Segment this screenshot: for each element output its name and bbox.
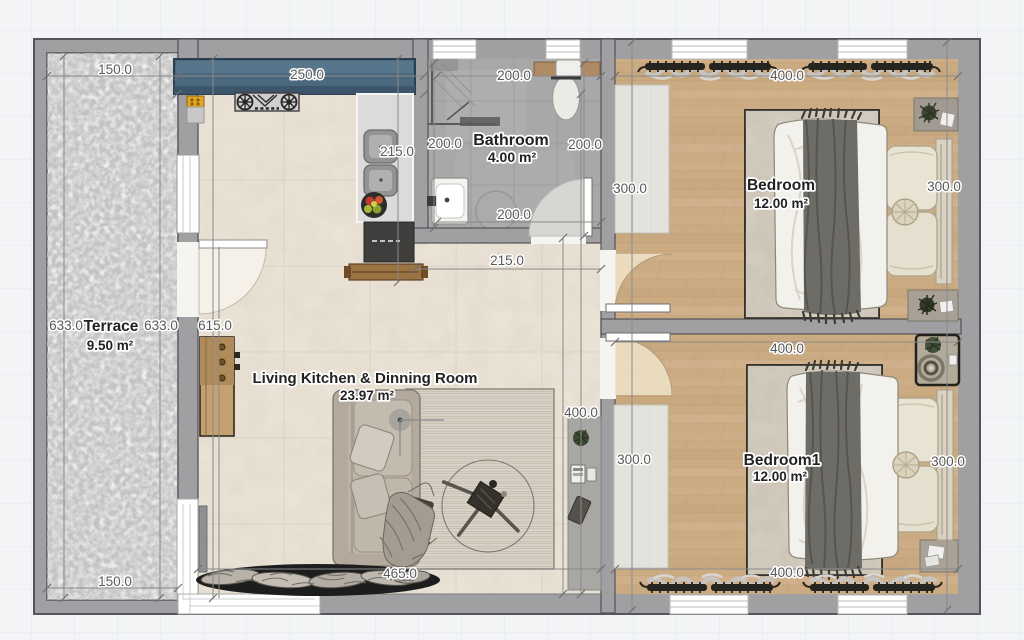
svg-text:23.97 m²: 23.97 m² — [340, 388, 395, 403]
svg-text:200.0: 200.0 — [497, 207, 531, 222]
svg-text:633.0: 633.0 — [49, 318, 83, 333]
svg-text:150.0: 150.0 — [98, 62, 132, 77]
svg-text:215.0: 215.0 — [380, 144, 414, 159]
svg-text:Living Kitchen & Dinning Room: Living Kitchen & Dinning Room — [253, 370, 478, 387]
svg-text:200.0: 200.0 — [428, 136, 462, 151]
svg-text:150.0: 150.0 — [98, 574, 132, 589]
svg-text:12.00 m²: 12.00 m² — [754, 196, 809, 211]
svg-text:12.00 m²: 12.00 m² — [753, 469, 808, 484]
svg-text:615.0: 615.0 — [198, 318, 232, 333]
svg-text:400.0: 400.0 — [770, 68, 804, 83]
svg-text:633.0: 633.0 — [144, 318, 178, 333]
svg-text:400.0: 400.0 — [770, 565, 804, 580]
svg-text:200.0: 200.0 — [497, 68, 531, 83]
svg-text:300.0: 300.0 — [931, 454, 965, 469]
svg-text:300.0: 300.0 — [927, 179, 961, 194]
svg-text:400.0: 400.0 — [564, 405, 598, 420]
svg-text:465.0: 465.0 — [383, 566, 417, 581]
svg-text:Bathroom: Bathroom — [473, 132, 549, 149]
svg-text:250.0: 250.0 — [290, 67, 324, 82]
svg-text:215.0: 215.0 — [490, 253, 524, 268]
svg-text:9.50 m²: 9.50 m² — [87, 338, 134, 353]
svg-text:4.00 m²: 4.00 m² — [488, 149, 537, 165]
svg-text:200.0: 200.0 — [568, 137, 602, 152]
svg-text:400.0: 400.0 — [770, 341, 804, 356]
svg-text:Terrace: Terrace — [84, 318, 139, 335]
svg-text:Bedroom1: Bedroom1 — [744, 452, 821, 469]
svg-text:300.0: 300.0 — [617, 452, 651, 467]
svg-text:300.0: 300.0 — [613, 181, 647, 196]
svg-text:Bedroom: Bedroom — [747, 177, 815, 194]
